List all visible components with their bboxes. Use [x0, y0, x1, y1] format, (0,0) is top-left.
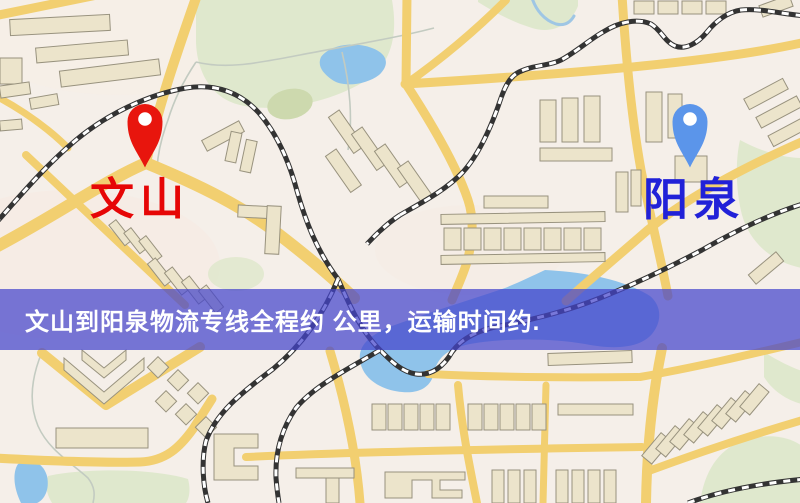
route-info-text: 文山到阳泉物流专线全程约 公里，运输时间约. [25, 302, 540, 337]
destination-label: 阳泉 [643, 177, 745, 222]
map-canvas[interactable]: 文山 阳泉 文山到阳泉物流专线全程约 公里，运输时间约. [0, 0, 800, 503]
map-image [0, 0, 800, 503]
origin-label: 文山 [90, 178, 190, 222]
route-info-banner: 文山到阳泉物流专线全程约 公里，运输时间约. [0, 289, 800, 350]
origin-pin-hole [138, 112, 152, 126]
destination-pin-hole [683, 112, 697, 126]
